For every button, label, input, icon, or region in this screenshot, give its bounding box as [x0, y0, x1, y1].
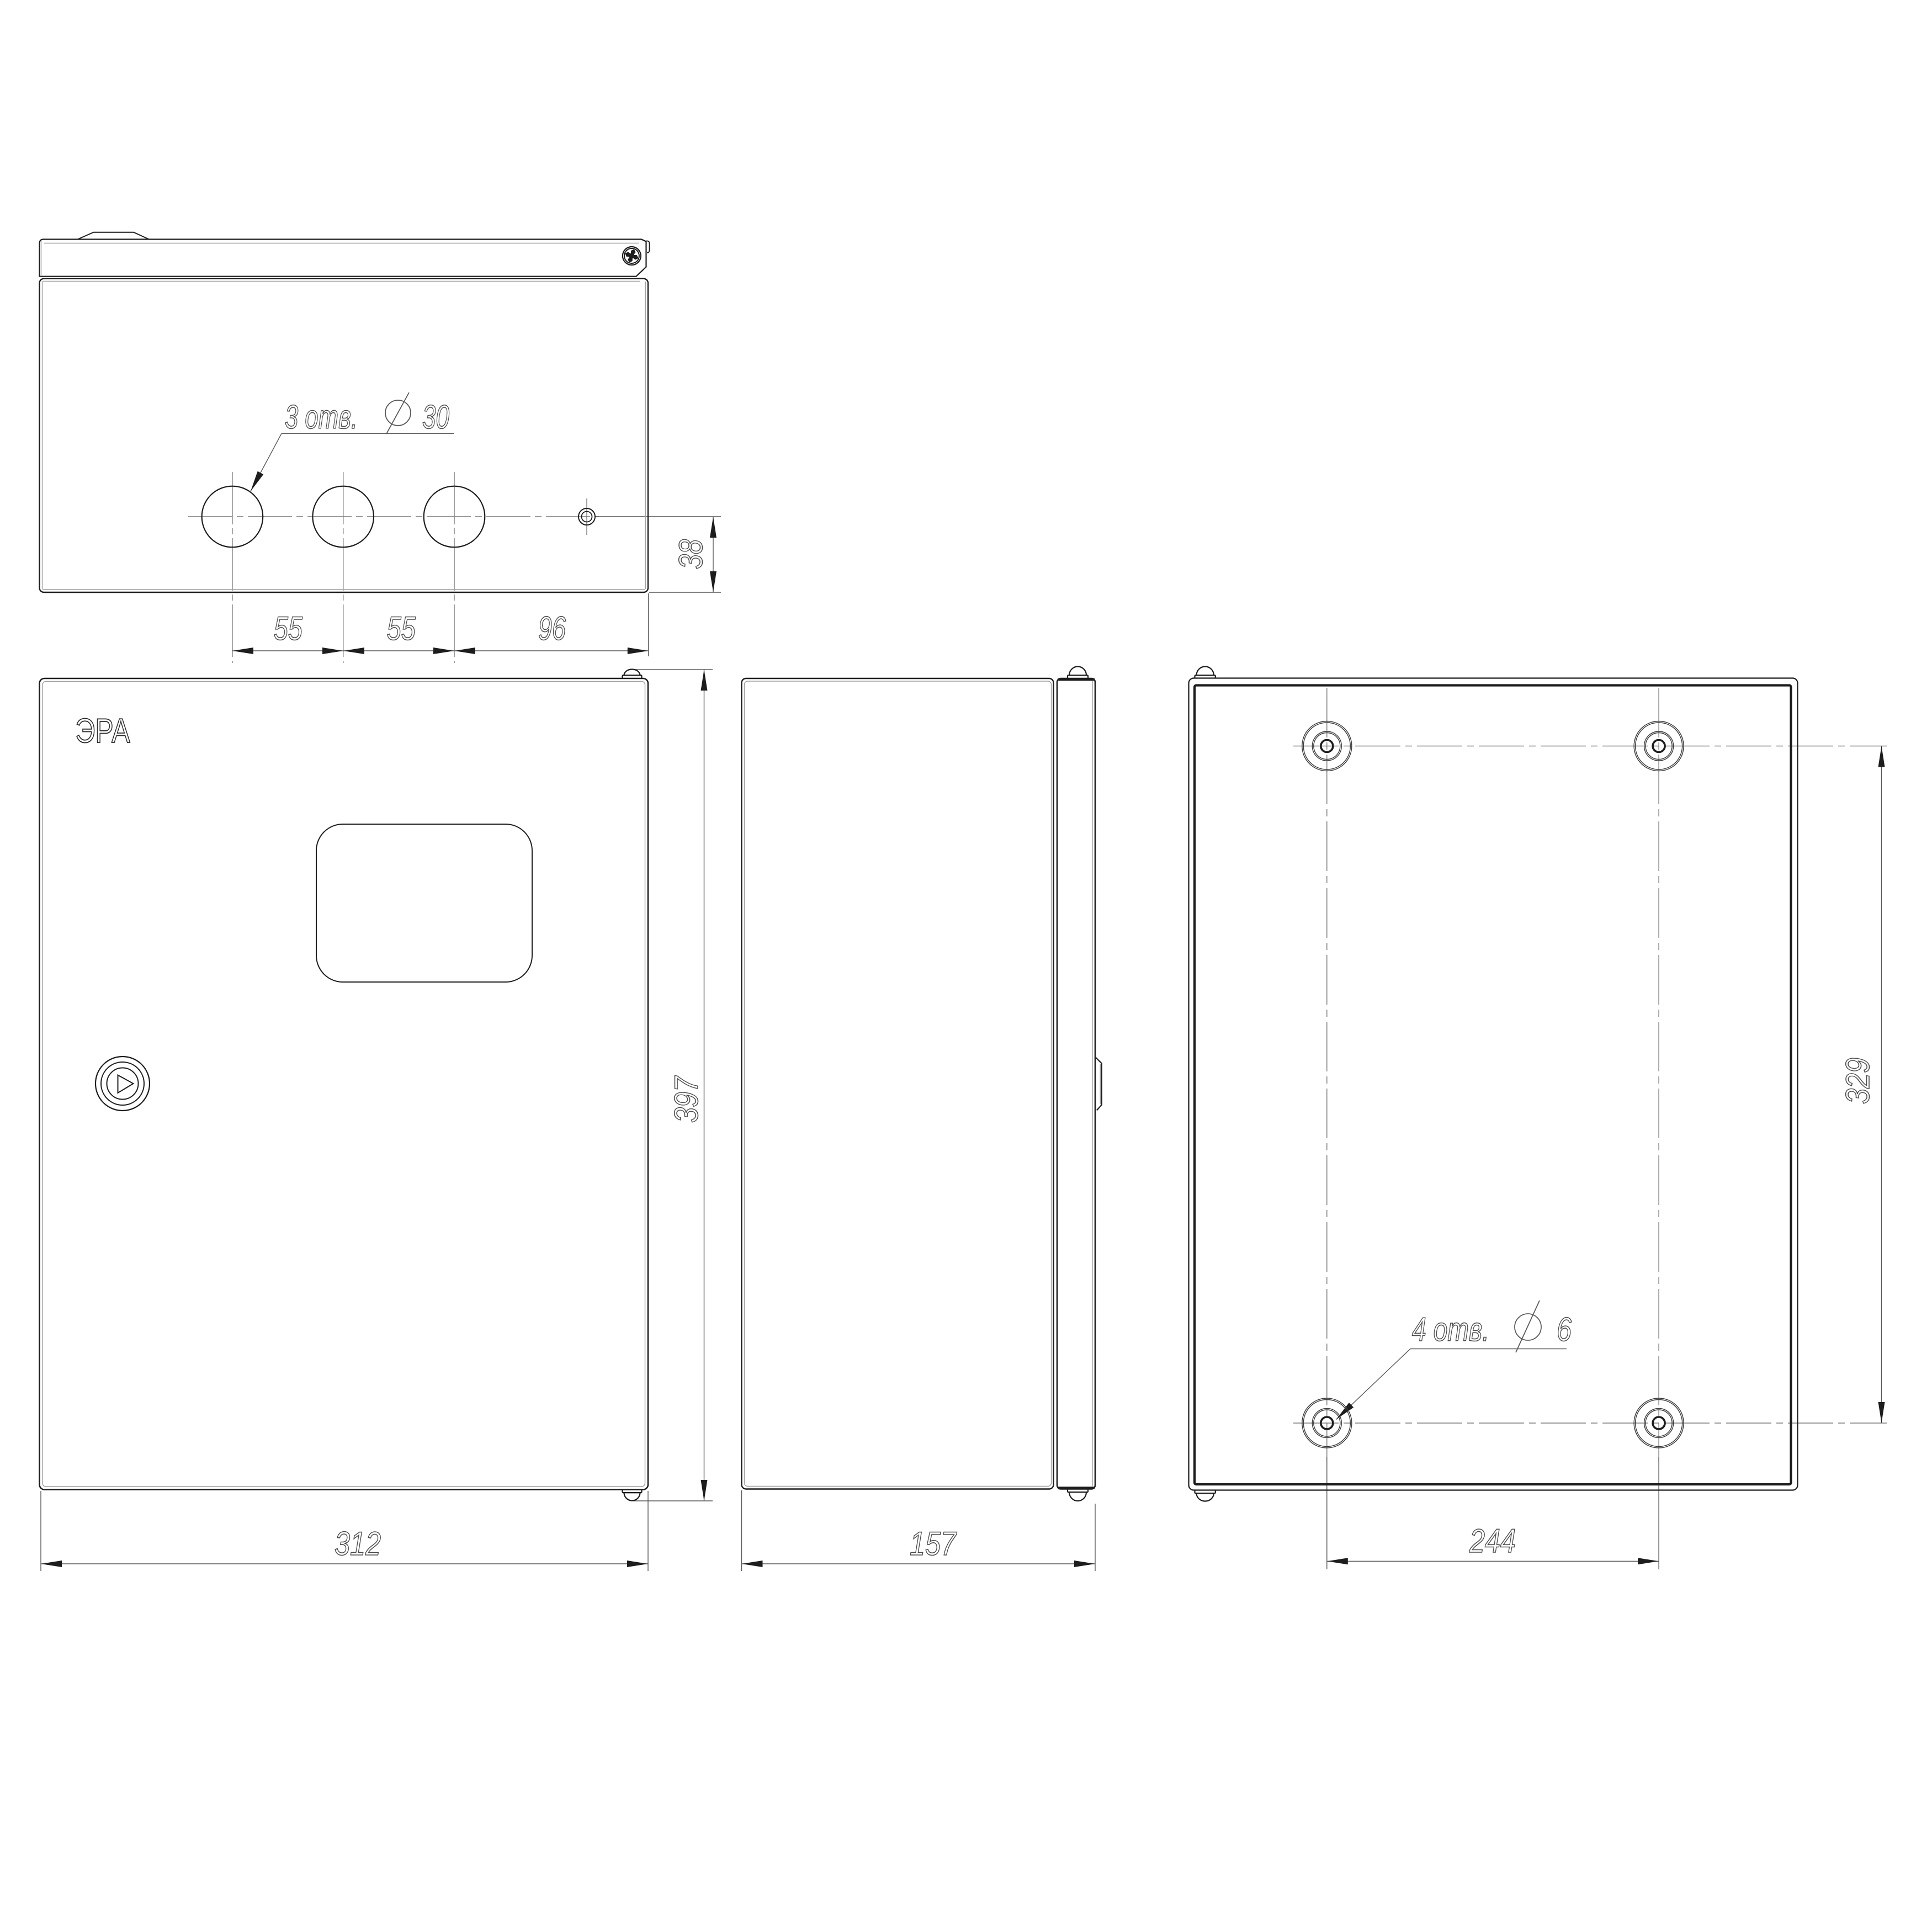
svg-text:38: 38	[672, 539, 709, 569]
svg-text:329: 329	[1839, 1058, 1876, 1104]
svg-text:30: 30	[422, 399, 449, 436]
svg-text:4 отв.: 4 отв.	[1412, 1311, 1489, 1348]
svg-text:6: 6	[1557, 1311, 1572, 1348]
svg-text:244: 244	[1469, 1522, 1516, 1559]
svg-text:157: 157	[910, 1525, 957, 1562]
svg-text:312: 312	[335, 1525, 381, 1562]
svg-text:96: 96	[538, 610, 566, 647]
svg-text:3 отв.: 3 отв.	[285, 399, 358, 436]
svg-text:55: 55	[274, 610, 302, 647]
svg-text:55: 55	[387, 610, 416, 647]
svg-text:397: 397	[668, 1075, 705, 1123]
svg-text:ЭРА: ЭРА	[76, 712, 131, 750]
